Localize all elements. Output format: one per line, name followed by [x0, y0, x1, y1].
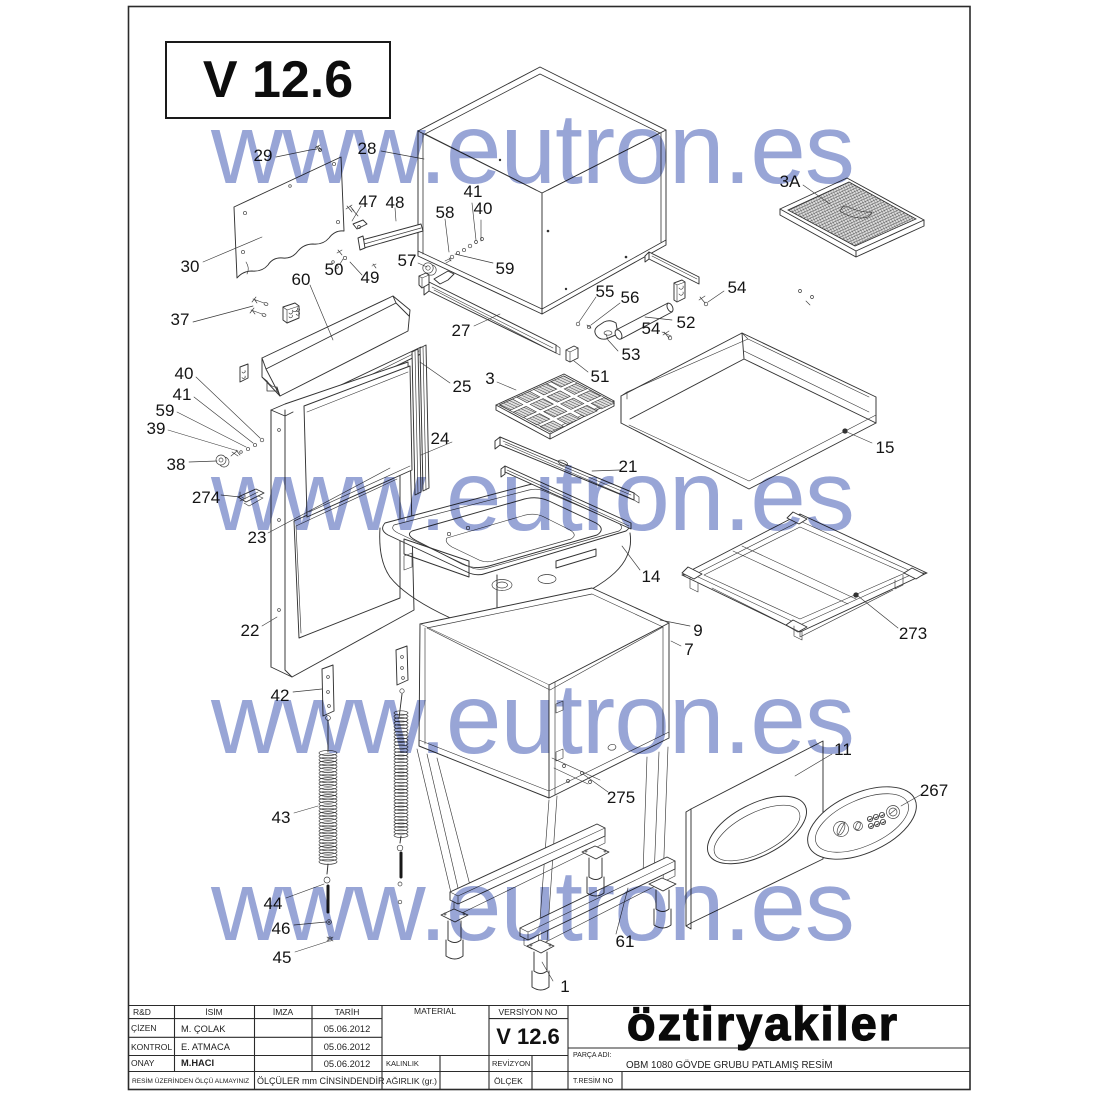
svg-text:M.HACI: M.HACI	[181, 1058, 214, 1068]
svg-text:14: 14	[642, 567, 661, 586]
svg-text:50: 50	[325, 260, 344, 279]
svg-text:3: 3	[485, 369, 494, 388]
svg-text:ÖLÇÜLER mm CİNSİNDENDİR: ÖLÇÜLER mm CİNSİNDENDİR	[257, 1076, 385, 1086]
svg-text:ÇİZEN: ÇİZEN	[131, 1023, 157, 1033]
svg-text:41: 41	[173, 385, 192, 404]
svg-text:R&D: R&D	[133, 1007, 151, 1017]
svg-text:İSİM: İSİM	[205, 1007, 222, 1017]
svg-text:öztiryakiler: öztiryakiler	[627, 997, 899, 1050]
svg-text:www.eutron.es: www.eutron.es	[210, 440, 854, 552]
svg-text:KALINLIK: KALINLIK	[386, 1059, 419, 1068]
svg-text:ÖLÇEK: ÖLÇEK	[494, 1076, 523, 1086]
svg-text:T.RESİM NO: T.RESİM NO	[573, 1076, 614, 1085]
svg-text:22: 22	[241, 621, 260, 640]
svg-text:05.06.2012: 05.06.2012	[324, 1042, 371, 1052]
svg-text:59: 59	[496, 259, 515, 278]
svg-text:ONAY: ONAY	[131, 1058, 155, 1068]
svg-text:TARİH: TARİH	[335, 1007, 360, 1017]
svg-text:39: 39	[147, 419, 166, 438]
svg-text:MATERIAL: MATERIAL	[414, 1006, 456, 1016]
svg-text:REVİZYON: REVİZYON	[492, 1059, 530, 1068]
svg-text:05.06.2012: 05.06.2012	[324, 1059, 371, 1069]
svg-text:V 12.6: V 12.6	[496, 1024, 560, 1049]
svg-text:V 12.6: V 12.6	[203, 51, 353, 109]
svg-text:54: 54	[728, 278, 747, 297]
svg-text:52: 52	[677, 313, 696, 332]
svg-text:www.eutron.es: www.eutron.es	[210, 850, 854, 962]
svg-text:www.eutron.es: www.eutron.es	[210, 663, 854, 775]
svg-text:49: 49	[361, 268, 380, 287]
svg-text:60: 60	[292, 270, 311, 289]
svg-text:30: 30	[181, 257, 200, 276]
svg-text:40: 40	[175, 364, 194, 383]
svg-text:PARÇA ADI:: PARÇA ADI:	[573, 1052, 611, 1059]
svg-text:KONTROL: KONTROL	[131, 1042, 172, 1052]
svg-text:15: 15	[876, 438, 895, 457]
svg-text:1: 1	[560, 977, 569, 996]
svg-text:37: 37	[171, 310, 190, 329]
svg-text:OBM 1080 GÖVDE GRUBU PATLAMIŞ: OBM 1080 GÖVDE GRUBU PATLAMIŞ RESİM	[626, 1060, 833, 1071]
svg-text:7: 7	[684, 640, 693, 659]
svg-text:267: 267	[920, 781, 948, 800]
svg-text:273: 273	[899, 624, 927, 643]
svg-text:AĞIRLIK (gr.): AĞIRLIK (gr.)	[386, 1076, 437, 1086]
svg-text:25: 25	[453, 377, 472, 396]
svg-text:E. ATMACA: E. ATMACA	[181, 1042, 231, 1052]
svg-text:M. ÇOLAK: M. ÇOLAK	[181, 1024, 226, 1034]
svg-text:53: 53	[622, 345, 641, 364]
svg-text:RESİM ÜZERİNDEN ÖLÇÜ ALMAYINIZ: RESİM ÜZERİNDEN ÖLÇÜ ALMAYINIZ	[132, 1076, 249, 1085]
svg-text:55: 55	[596, 282, 615, 301]
svg-text:59: 59	[156, 401, 175, 420]
svg-text:İMZA: İMZA	[273, 1007, 294, 1017]
svg-text:58: 58	[436, 203, 455, 222]
svg-text:38: 38	[167, 455, 186, 474]
svg-text:27: 27	[452, 321, 471, 340]
svg-text:57: 57	[398, 251, 417, 270]
svg-text:51: 51	[591, 367, 610, 386]
svg-text:56: 56	[621, 288, 640, 307]
svg-text:54: 54	[642, 319, 661, 338]
svg-text:05.06.2012: 05.06.2012	[324, 1024, 371, 1034]
svg-text:275: 275	[607, 788, 635, 807]
svg-text:VERSİYON NO: VERSİYON NO	[498, 1007, 557, 1017]
svg-text:9: 9	[693, 621, 702, 640]
svg-text:43: 43	[272, 808, 291, 827]
